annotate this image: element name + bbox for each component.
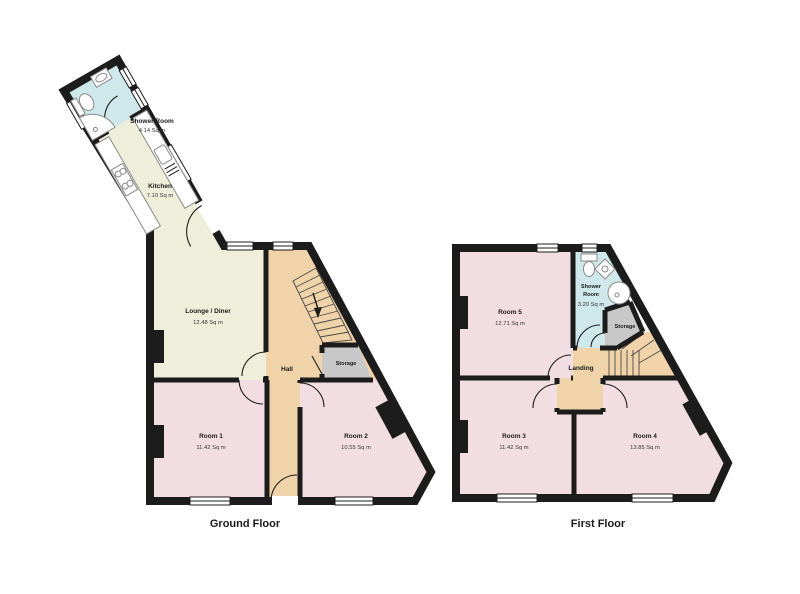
room-label-room2: Room 2: [344, 433, 368, 440]
room-label-room5: Room 5: [498, 309, 522, 316]
chimney-breast-room1: [148, 425, 164, 458]
chimney-breast-room3: [452, 420, 468, 453]
room-area-label-shower-gf: 4.14 Sq m: [139, 128, 166, 134]
room-area-label-room5: 12.71 Sq m: [495, 321, 525, 327]
room-area-lounge: [150, 231, 266, 380]
floor-title-ground: Ground Floor: [210, 518, 281, 530]
room-label-shower-ff-1: Shower: [581, 284, 602, 290]
room-label-storage-gf: Storage: [336, 361, 357, 367]
room-area-label-room2: 10.55 Sq m: [341, 445, 371, 451]
room-label-shower-gf: Shower Room: [130, 118, 174, 125]
room-label-room4: Room 4: [633, 433, 657, 440]
room-label-landing: Landing: [568, 365, 593, 372]
floor-plan-svg: Shower Room 4.14 Sq m Kitchen 7.10 Sq m …: [0, 0, 800, 594]
first-floor-plan: Room 5 12.71 Sq m Shower Room 3.20 Sq m …: [452, 244, 728, 530]
ground-floor-plan: Shower Room 4.14 Sq m Kitchen 7.10 Sq m …: [61, 58, 431, 530]
room-area-label-kitchen: 7.10 Sq m: [147, 193, 174, 199]
room-label-storage-ff: Storage: [615, 324, 636, 330]
floor-title-first: First Floor: [571, 518, 626, 530]
room-area-label-room1: 11.42 Sq m: [196, 445, 225, 451]
room-label-hall: Hall: [281, 366, 293, 373]
room-label-kitchen: Kitchen: [148, 183, 172, 190]
room-label-room3: Room 3: [502, 433, 526, 440]
room-area-label-shower-ff: 3.20 Sq m: [578, 302, 605, 308]
chimney-breast-room5: [452, 296, 468, 329]
shower-enclosure-icon-ff: [608, 282, 630, 304]
room-label-shower-ff-2: Room: [583, 292, 599, 298]
room-area-label-room4: 13.85 Sq m: [630, 445, 660, 451]
room-area-room1: [150, 380, 268, 501]
room-area-label-room3: 11.42 Sq m: [499, 445, 528, 451]
floorplan-page: Shower Room 4.14 Sq m Kitchen 7.10 Sq m …: [0, 0, 800, 594]
chimney-breast-lounge: [148, 330, 164, 363]
room-label-room1: Room 1: [199, 433, 223, 440]
room-label-lounge: Lounge / Diner: [185, 308, 231, 315]
room-area-label-lounge: 12.48 Sq m: [193, 320, 223, 326]
